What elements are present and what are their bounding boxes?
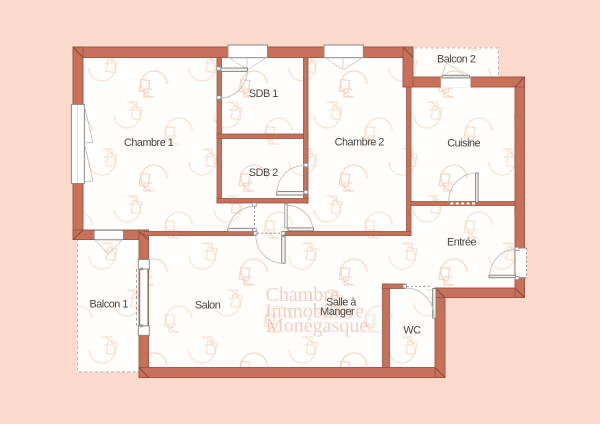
svg-text:Chambre 1: Chambre 1 bbox=[124, 137, 174, 149]
svg-text:SDB 1: SDB 1 bbox=[249, 88, 278, 100]
svg-text:Chambre 2: Chambre 2 bbox=[335, 137, 385, 149]
svg-text:Salon: Salon bbox=[195, 300, 221, 312]
svg-text:Cuisine: Cuisine bbox=[447, 138, 480, 150]
svg-text:Balcon 1: Balcon 1 bbox=[89, 298, 128, 310]
svg-text:SDB 2: SDB 2 bbox=[249, 167, 278, 179]
svg-text:Balcon 2: Balcon 2 bbox=[437, 54, 476, 66]
svg-text:Manger: Manger bbox=[320, 306, 355, 318]
svg-text:Monégasque: Monégasque bbox=[266, 315, 368, 337]
svg-text:Entrée: Entrée bbox=[447, 237, 477, 249]
svg-text:WC: WC bbox=[403, 325, 421, 337]
